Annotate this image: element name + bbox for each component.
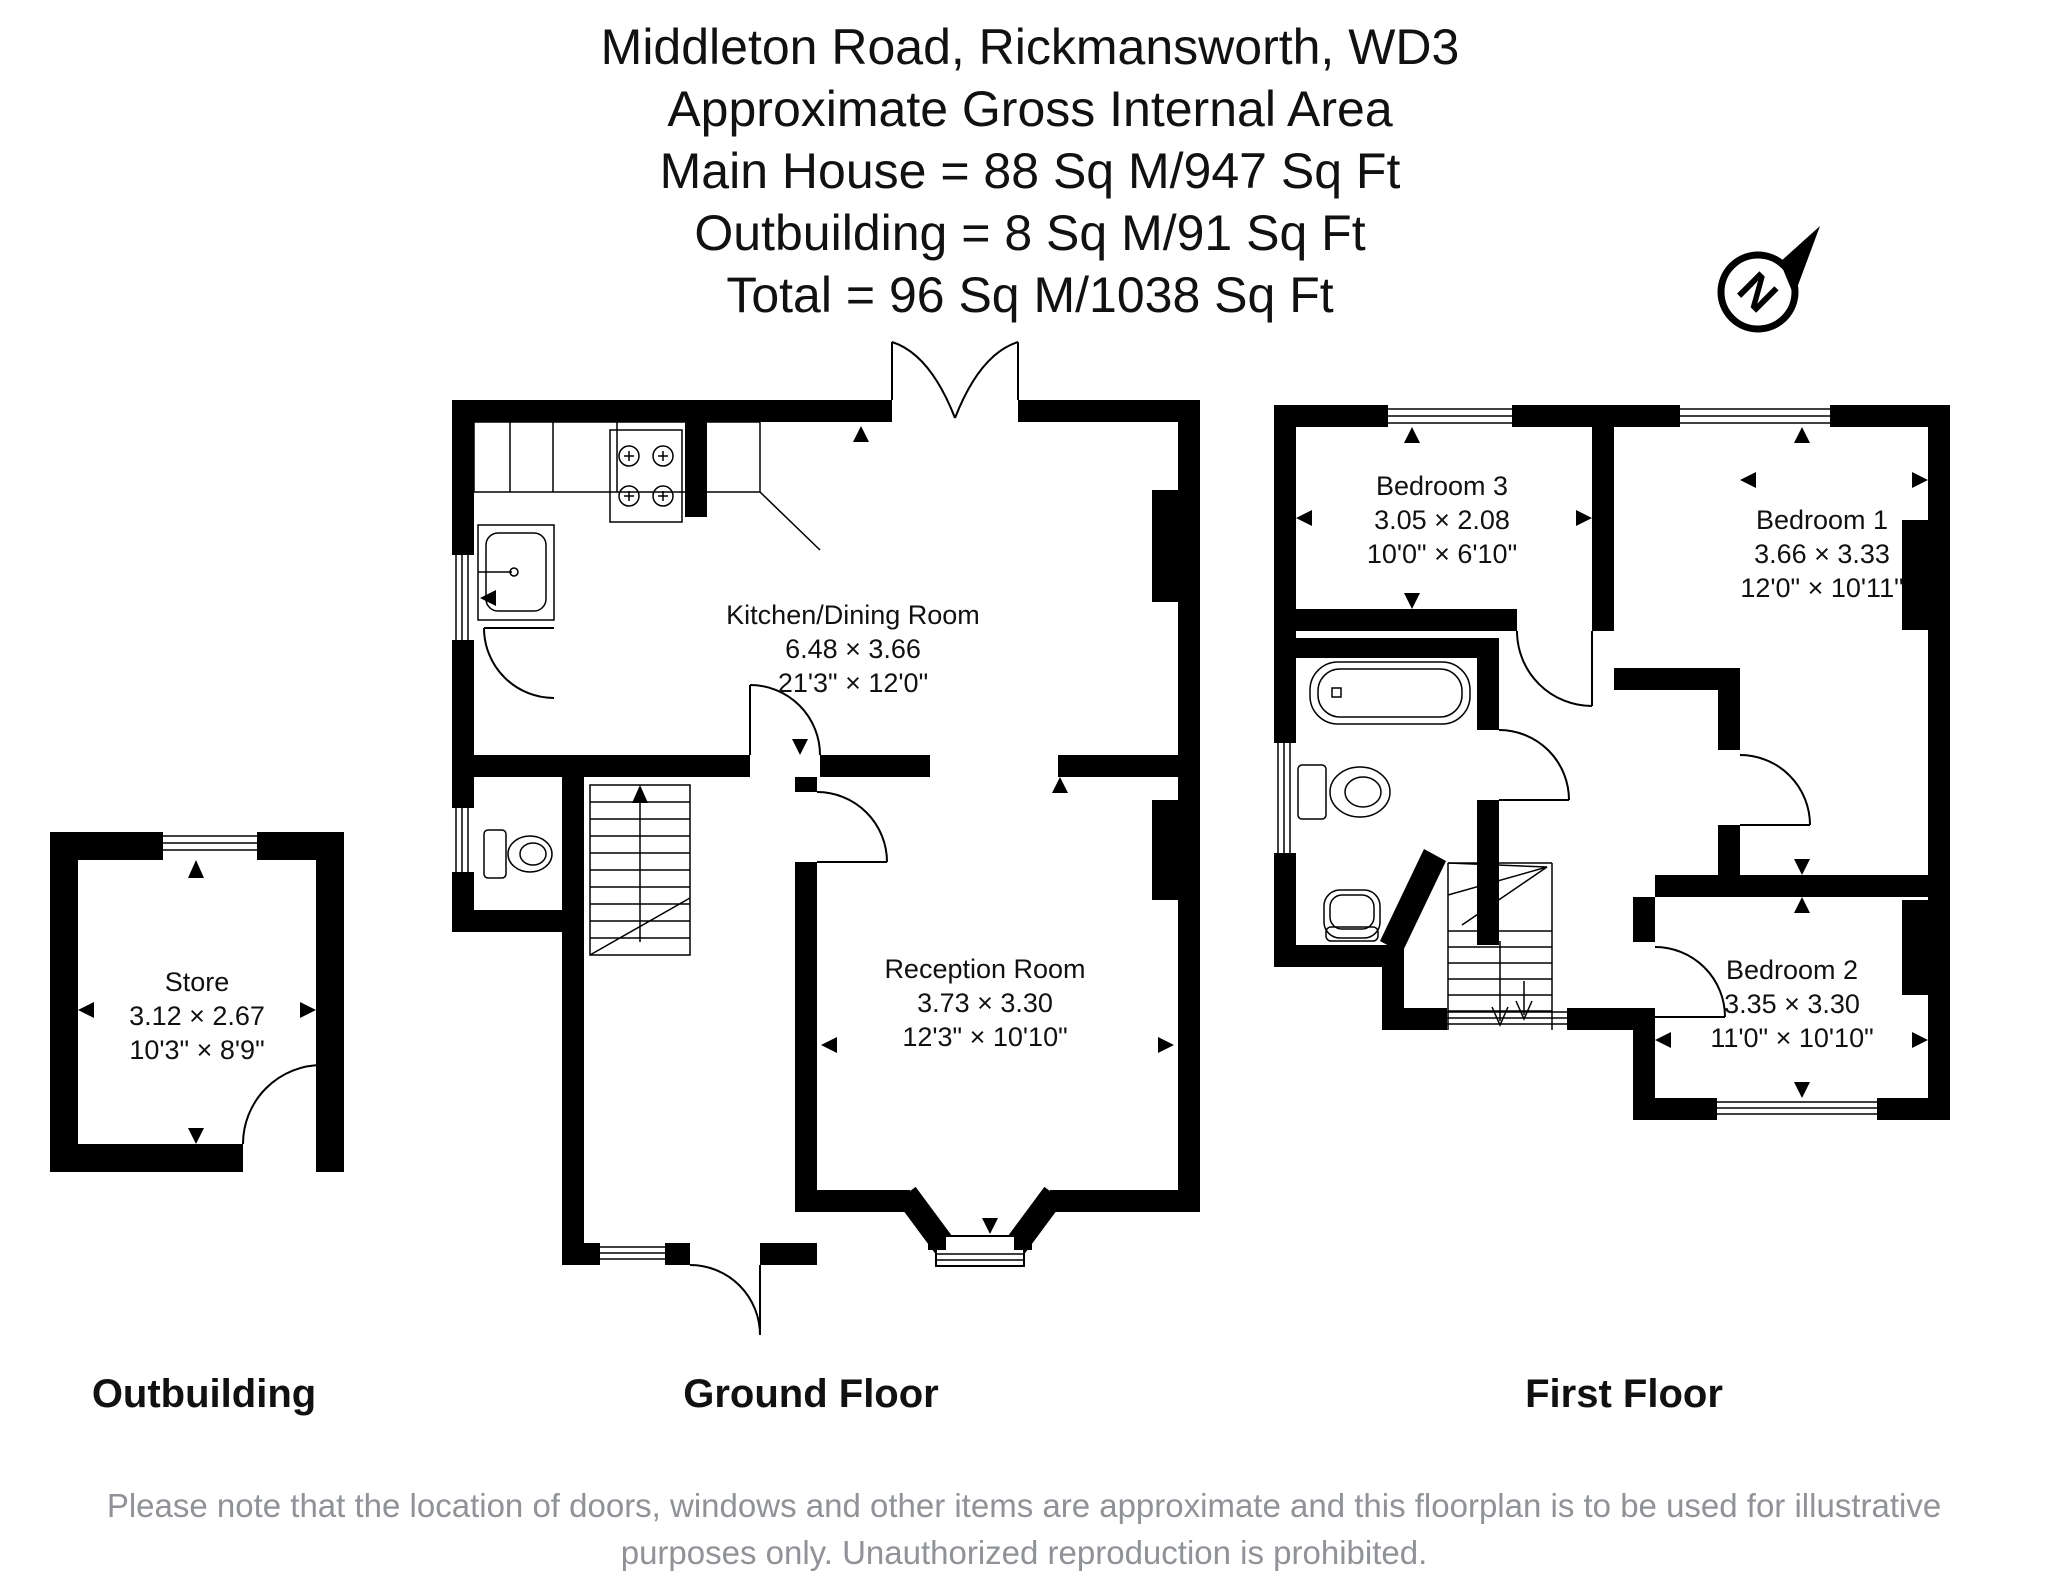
wc-window	[452, 808, 474, 872]
ground-floor-drawing	[450, 330, 1210, 1340]
sink-icon	[478, 525, 554, 620]
caption-ground-floor: Ground Floor	[611, 1372, 1011, 1417]
compass: N	[1680, 212, 1850, 362]
bedroom1-metric: 3.66 × 3.33	[1682, 537, 1962, 571]
bathroom-window	[1274, 743, 1296, 853]
bedroom3-metric: 3.05 × 2.08	[1282, 503, 1602, 537]
reception-door-arc	[817, 792, 887, 862]
title-main-house-area: Main House = 88 Sq M/947 Sq Ft	[0, 140, 2048, 202]
title-address: Middleton Road, Rickmansworth, WD3	[0, 16, 2048, 78]
disclaimer-line-1: Please note that the location of doors, …	[0, 1482, 2048, 1529]
staircase-up	[590, 785, 690, 955]
kitchen-window	[452, 555, 474, 640]
entry-double-door	[892, 342, 1018, 418]
bedroom3-imperial: 10'0" × 6'10"	[1282, 537, 1602, 571]
bedroom3-name: Bedroom 3	[1282, 469, 1602, 503]
bedroom1-name: Bedroom 1	[1682, 503, 1962, 537]
front-door-arc	[690, 1243, 760, 1335]
kitchen-label: Kitchen/Dining Room 6.48 × 3.66 21'3" × …	[693, 598, 1013, 700]
bedroom2-metric: 3.35 × 3.30	[1652, 987, 1932, 1021]
bedroom1-window	[1680, 405, 1830, 427]
store-window	[163, 836, 257, 850]
caption-first-floor: First Floor	[1424, 1372, 1824, 1417]
store-label: Store 3.12 × 2.67 10'3" × 8'9"	[57, 965, 337, 1067]
bedroom1-label: Bedroom 1 3.66 × 3.33 12'0" × 10'11"	[1682, 503, 1962, 605]
store-imperial: 10'3" × 8'9"	[57, 1033, 337, 1067]
kitchen-name: Kitchen/Dining Room	[693, 598, 1013, 632]
side-lobby-door-arc	[484, 628, 554, 698]
hall-window	[600, 1243, 665, 1265]
store-door-arc	[243, 1065, 322, 1144]
reception-metric: 3.73 × 3.30	[825, 986, 1145, 1020]
ground-floor-walls	[452, 400, 1200, 1265]
basin-icon	[1324, 890, 1380, 941]
store-metric: 3.12 × 2.67	[57, 999, 337, 1033]
compass-north-label: N	[1728, 262, 1788, 322]
reception-name: Reception Room	[825, 952, 1145, 986]
outbuilding-plan: Store 3.12 × 2.67 10'3" × 8'9"	[44, 820, 364, 1200]
bath-icon	[1310, 662, 1470, 724]
bedroom3-label: Bedroom 3 3.05 × 2.08 10'0" × 6'10"	[1282, 469, 1602, 571]
bay-window	[906, 1194, 1054, 1266]
measurement-markers	[480, 426, 1174, 1234]
bedroom2-name: Bedroom 2	[1652, 953, 1932, 987]
floorplan-page: Middleton Road, Rickmansworth, WD3 Appro…	[0, 0, 2048, 1583]
toilet-icon	[484, 830, 552, 878]
reception-label: Reception Room 3.73 × 3.30 12'3" × 10'10…	[825, 952, 1145, 1054]
kitchen-imperial: 21'3" × 12'0"	[693, 666, 1013, 700]
bedroom2-window	[1717, 1098, 1877, 1120]
kitchen-counter	[474, 422, 820, 550]
first-floor-plan: Bedroom 3 3.05 × 2.08 10'0" × 6'10" Bedr…	[1262, 385, 1962, 1225]
disclaimer: Please note that the location of doors, …	[0, 1482, 2048, 1576]
kitchen-metric: 6.48 × 3.66	[693, 632, 1013, 666]
bedroom3-window	[1388, 405, 1512, 427]
title-area-heading: Approximate Gross Internal Area	[0, 78, 2048, 140]
bedroom2-imperial: 11'0" × 10'10"	[1652, 1021, 1932, 1055]
store-name: Store	[57, 965, 337, 999]
caption-outbuilding: Outbuilding	[24, 1372, 384, 1417]
staircase-down	[1448, 863, 1552, 1030]
reception-imperial: 12'3" × 10'10"	[825, 1020, 1145, 1054]
compass-icon: N	[1680, 212, 1850, 362]
bedroom1-imperial: 12'0" × 10'11"	[1682, 571, 1962, 605]
bedroom1-door-arc	[1740, 755, 1810, 825]
toilet-icon	[1298, 765, 1390, 819]
bedroom3-door-arc	[1517, 631, 1592, 706]
ground-floor-plan: Kitchen/Dining Room 6.48 × 3.66 21'3" × …	[450, 330, 1210, 1340]
bathroom-door-arc	[1499, 730, 1569, 800]
bedroom2-label: Bedroom 2 3.35 × 3.30 11'0" × 10'10"	[1652, 953, 1932, 1055]
disclaimer-line-2: purposes only. Unauthorized reproduction…	[0, 1529, 2048, 1576]
stove-icon	[610, 430, 682, 522]
